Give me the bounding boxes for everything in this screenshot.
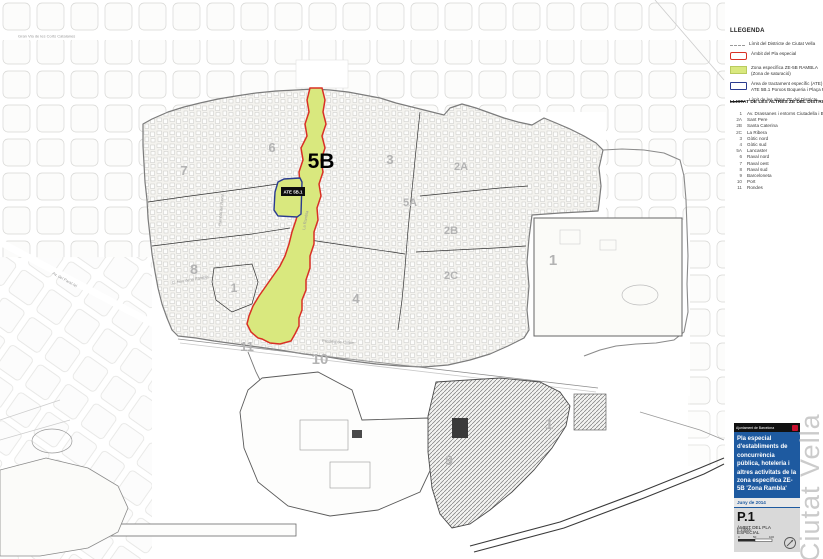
legend-item-label: Àmbit del Pla especial [751, 51, 796, 56]
ciutadella-park [534, 218, 682, 336]
zone-label: 6 [268, 140, 275, 155]
zone-label: 1 [549, 252, 557, 269]
zone-label: 3 [386, 152, 393, 167]
legend-item-line2: (Zona de saturació) [751, 71, 818, 76]
authority-name: Ajuntament de Barcelona [736, 426, 774, 430]
ate-swatch [730, 82, 747, 90]
zone-label: 5A [403, 197, 417, 209]
zone-label: 4 [352, 291, 360, 306]
ate-zone: ATE 5B.1 [274, 178, 305, 217]
district-watermark: Ciutat Vella [795, 412, 823, 559]
scale-tick: 0 [738, 535, 740, 539]
ze-list-title: LLISTAT DE LES ALTRES ZE DEL DISTRICTE [730, 100, 822, 105]
scale-row: E 1:5000 0 50 100 [737, 528, 797, 550]
legend-title: LLEGENDA [730, 28, 822, 34]
legend-item: Àmbit del Pla especial [730, 51, 822, 60]
street-label: Gran Via de les Corts Catalanes [18, 34, 75, 39]
scale-bar-graphic: 0 50 100 [737, 535, 779, 545]
ze-name: Rondes [747, 185, 763, 191]
plan-scope-swatch [730, 52, 747, 60]
legend-item: Àrea de tractament específic (ATE) ATE 5… [730, 81, 822, 92]
scale-bar: E 1:5000 0 50 100 [737, 528, 779, 550]
sheet-code: P.1 [737, 510, 797, 523]
placa-catalunya [296, 60, 348, 88]
district-limit-swatch [730, 45, 745, 46]
legend-item: Zona específica ZE-5B RAMBLA (Zona de sa… [730, 65, 822, 76]
legend-item-line1: Àrea de tractament específic (ATE) [751, 81, 823, 86]
zone-label: 1 [231, 281, 238, 295]
legend-item-label: Àrea de tractament específic (ATE) ATE 5… [751, 81, 823, 92]
scale-text: E 1:5000 [737, 528, 779, 532]
ze-list: LLISTAT DE LES ALTRES ZE DEL DISTRICTE 1… [730, 100, 822, 192]
barceloneta-hatch [428, 378, 606, 528]
title-block: Ajuntament de Barcelona Pla especial d'e… [734, 423, 800, 552]
zone-label-5b: 5B [308, 150, 335, 173]
zone-label: 2B [444, 225, 458, 237]
scale-tick: 100 [769, 535, 774, 539]
map-canvas: ATE 5B.1 5B 6 7 8 1 11 10 3 5A 2A 2B 2C … [0, 0, 725, 559]
zone-5b-swatch [730, 66, 747, 74]
ate-label: ATE 5B.1 [284, 190, 304, 195]
list-item: 11Rondes [730, 185, 822, 191]
zone-label: 9 [445, 452, 453, 468]
gran-via-street [0, 31, 725, 40]
plan-date: Juny de 2014 [734, 498, 800, 508]
zone-label: 8 [190, 261, 198, 277]
zone-label: 10 [312, 351, 329, 368]
ze-code: 11 [730, 185, 747, 191]
zone-label: 2A [454, 161, 468, 173]
plan-sheet: ATE 5B.1 5B 6 7 8 1 11 10 3 5A 2A 2B 2C … [0, 0, 823, 559]
zone-label: 11 [240, 339, 254, 354]
legend: LLEGENDA Límit del Districte de Ciutat V… [730, 28, 822, 107]
plan-title: Pla especial d'establiments de concurrèn… [737, 435, 797, 494]
zone-label: 2C [444, 270, 458, 282]
legend-item-line2: ATE 5B.1 Porxos Boqueria i Plaça Pagesos [751, 87, 823, 92]
zone-label: 7 [180, 163, 187, 178]
sheet-box: P.1 ÀMBIT DEL PLA ESPECIAL E 1:5000 0 50… [734, 508, 800, 552]
plan-title-box: Pla especial d'establiments de concurrèn… [734, 432, 800, 498]
scale-tick: 50 [753, 535, 757, 539]
legend-item-label: Zona específica ZE-5B RAMBLA (Zona de sa… [751, 65, 818, 76]
legend-item-label: Límit del Districte de Ciutat Vella [749, 41, 815, 46]
authority-bar: Ajuntament de Barcelona [734, 423, 800, 432]
side-panel: LLEGENDA Límit del Districte de Ciutat V… [725, 0, 823, 559]
zone-label: 1 [545, 416, 553, 433]
legend-item: Límit del Districte de Ciutat Vella [730, 41, 822, 46]
